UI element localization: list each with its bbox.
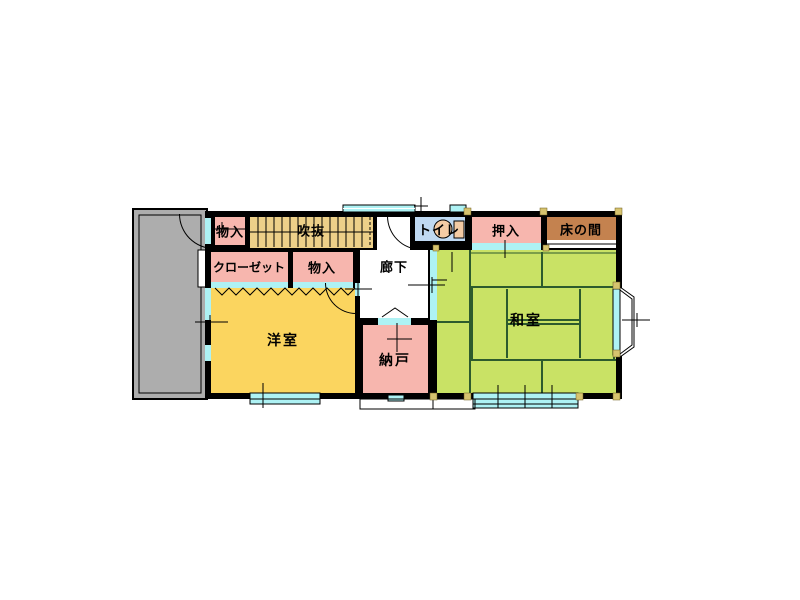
western-bottom-window-b — [250, 399, 320, 404]
step-outline — [360, 399, 475, 409]
label-storage-room: 納戸 — [379, 350, 411, 370]
left-window-3 — [205, 345, 211, 361]
label-stairwell-void: 吹抜 — [297, 221, 325, 240]
nando-door — [378, 318, 411, 325]
label-toilet: トイレ — [418, 220, 460, 239]
label-japanese-room: 和室 — [510, 310, 542, 330]
label-storage-2: 物入 — [308, 258, 336, 277]
floor-plan-page: 物入 吹抜 トイレ 押入 床の間 クローゼット 物入 廊下 洋室 納戸 和室 — [0, 0, 800, 600]
floor-plan-drawing — [0, 0, 800, 600]
nando-bottom-window — [388, 395, 404, 401]
closet-door-sill — [211, 282, 288, 288]
label-tokonoma: 床の間 — [560, 220, 602, 239]
oshiire-fusuma — [472, 243, 541, 250]
label-western-room: 洋室 — [267, 330, 299, 350]
bay-window — [613, 287, 634, 357]
toilet-top-window — [450, 205, 466, 212]
label-hallway: 廊下 — [380, 257, 408, 276]
label-closet: クローゼット — [213, 259, 285, 276]
label-storage-1: 物入 — [216, 222, 244, 241]
label-oshiire: 押入 — [492, 221, 520, 240]
western-bottom-window-a — [250, 393, 320, 399]
